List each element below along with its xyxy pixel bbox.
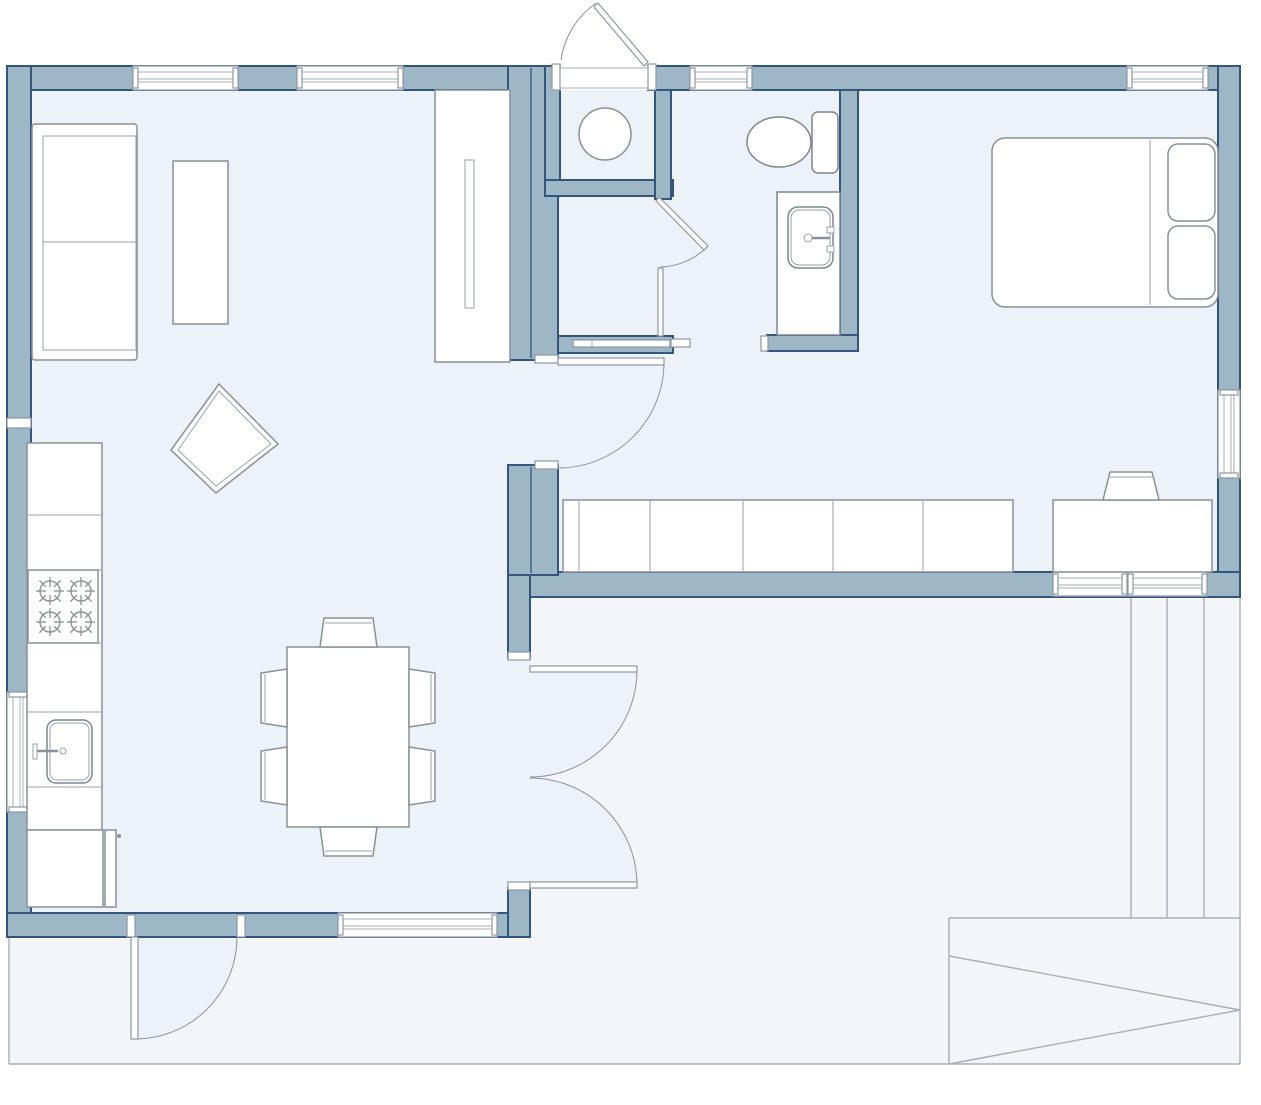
entry-threshold <box>560 66 648 90</box>
jamb-cap-back-door-left <box>127 915 135 937</box>
wall-utility-bottom <box>545 180 673 196</box>
jamb-cap-living-door-bottom <box>535 461 558 469</box>
window-living-2 <box>297 66 403 90</box>
tv <box>465 160 474 308</box>
console-table <box>173 161 228 324</box>
desk <box>1053 500 1212 572</box>
cap-bath-wall-end <box>761 336 768 351</box>
dining-table <box>287 647 409 827</box>
window-bedroom-east <box>1218 390 1240 478</box>
desk-chair <box>1103 472 1159 500</box>
stove-burner-3 <box>36 608 64 636</box>
wall-bath-right <box>840 90 858 351</box>
door-leaf-french-top <box>530 666 637 672</box>
wall-bath-bottom <box>767 335 858 351</box>
kitchen-faucet-handle <box>33 744 37 759</box>
stove-burner-4 <box>67 608 95 636</box>
window-living-1 <box>133 66 238 90</box>
door-leaf-back <box>131 937 138 1039</box>
window-desk-1 <box>1053 572 1127 596</box>
wall-divider-lower <box>508 575 530 658</box>
jamb-cap-entry-left <box>552 64 560 90</box>
fridge <box>27 830 103 907</box>
stove-burner-1 <box>36 577 64 605</box>
door-leaf-french-bottom <box>530 882 637 888</box>
floor-plan-page <box>0 0 1261 1105</box>
pillow-2 <box>1168 226 1215 299</box>
floor-living-door-gap <box>508 360 558 465</box>
door-leaf-living <box>558 358 664 365</box>
window-dining-south <box>338 913 497 937</box>
jamb-cap-entry-right <box>648 64 656 90</box>
bathroom-faucet-base <box>804 234 812 242</box>
bathroom-faucet-handle-1 <box>827 227 834 233</box>
bathroom-faucet-handle-2 <box>827 246 834 252</box>
window-desk-2 <box>1128 572 1207 596</box>
jamb-cap-back-door-right <box>237 915 245 937</box>
jamb-cap-french-top <box>508 652 530 660</box>
dining-chair-bottom <box>320 827 377 856</box>
jamb-cap-living-door-top <box>535 355 558 363</box>
wardrobe <box>563 500 1013 572</box>
pocket-door-track <box>573 340 670 347</box>
stove <box>28 570 98 643</box>
stove-burner-2 <box>67 577 95 605</box>
wall-utility-right <box>655 90 671 199</box>
toilet-bowl <box>747 117 811 167</box>
door-leaf-entry <box>594 3 648 66</box>
wall-east <box>1218 66 1240 597</box>
door-arc-entry <box>561 3 596 60</box>
floor-plan-drawing <box>0 0 1261 1105</box>
thin-partition <box>658 268 663 336</box>
washing-machine <box>579 108 631 160</box>
floor-french-door-gap <box>508 658 530 888</box>
wall-top-left <box>7 66 560 90</box>
window-hall-top <box>690 66 752 90</box>
window-bedroom-top <box>1127 66 1208 90</box>
wall-divider-mid <box>508 465 558 575</box>
fridge-handle <box>117 834 121 838</box>
wall-french-pillar <box>508 888 530 937</box>
jamb-cap-french-bottom <box>508 882 530 890</box>
toilet-tank <box>812 112 838 173</box>
dining-chair-top <box>320 618 377 647</box>
fridge-door <box>105 830 116 907</box>
pillow-1 <box>1168 144 1215 221</box>
cap-west-wall-seam <box>7 418 31 428</box>
pocket-door-panel <box>671 339 690 347</box>
